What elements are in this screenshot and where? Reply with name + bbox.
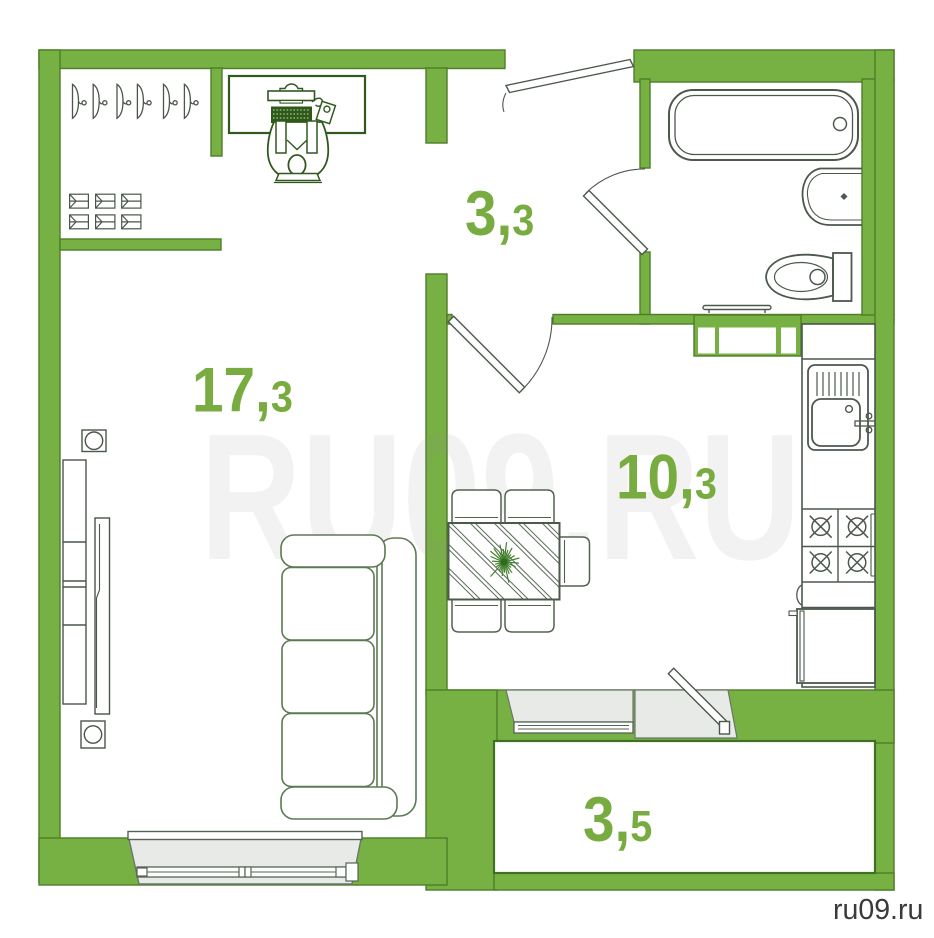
svg-text:ru09.ru: ru09.ru xyxy=(833,894,923,926)
